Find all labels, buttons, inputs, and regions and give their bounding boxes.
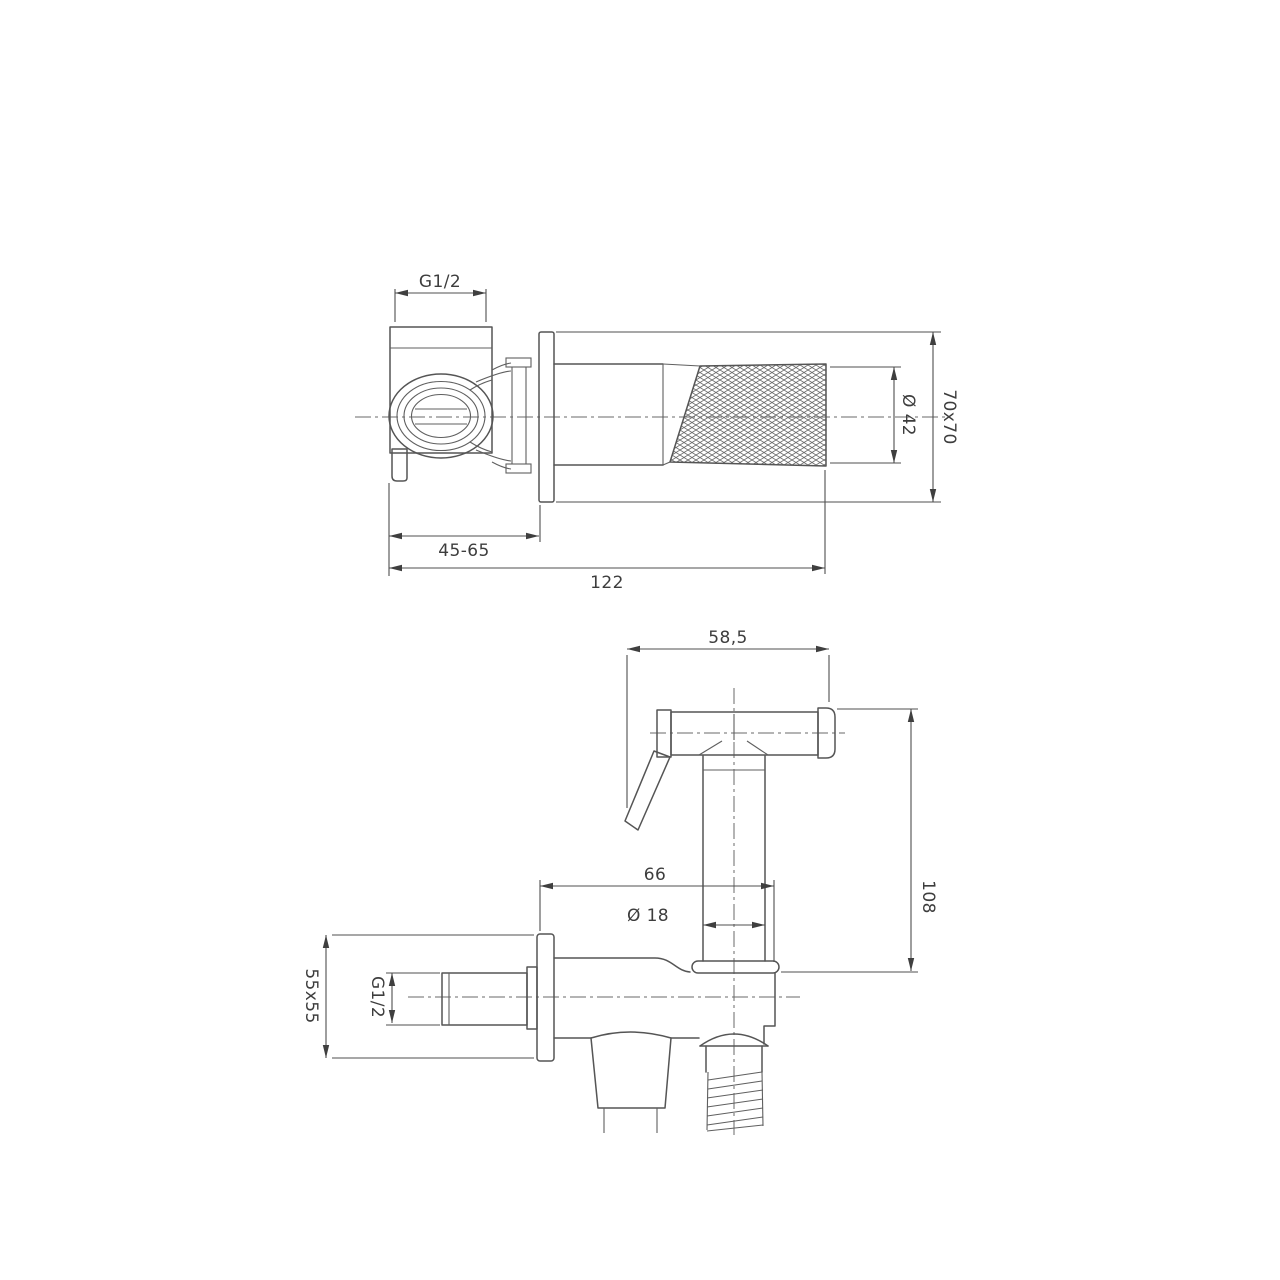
dim-label-handle-diameter: Ø 42 — [898, 394, 918, 436]
tube-collar — [692, 961, 779, 973]
mounting-foot — [392, 449, 407, 481]
dim-outlet-thread: G1/2 — [367, 973, 440, 1025]
dim-label-total-length: 122 — [590, 573, 624, 593]
dim-label-body-offset: 66 — [644, 865, 666, 885]
dim-total-length: 122 — [389, 470, 825, 593]
sprayer-tube — [692, 756, 779, 973]
technical-drawing-svg: G1/2 Ø 42 70x70 45-65 — [0, 0, 1280, 1280]
dim-inlet-thread: G1/2 — [395, 272, 486, 322]
dim-handle-diameter: Ø 42 — [830, 367, 918, 463]
dim-sprayer-height: 108 — [781, 709, 938, 972]
dim-label-plate-size: 55x55 — [301, 968, 321, 1023]
valve-cartridge-rings — [389, 374, 493, 458]
stem-spool — [506, 358, 531, 473]
dim-label-flange-size: 70x70 — [939, 389, 959, 444]
dim-label-depth-range: 45-65 — [438, 541, 489, 561]
dim-label-head-width: 58,5 — [708, 628, 747, 648]
dim-depth-range: 45-65 — [389, 483, 540, 576]
threaded-nipple — [442, 973, 527, 1025]
trigger-lever — [625, 751, 670, 830]
dim-label-outlet-thread: G1/2 — [367, 976, 387, 1018]
dim-tube-diameter: Ø 18 — [627, 906, 765, 928]
valve-body-front — [554, 958, 775, 1044]
drawing-page: G1/2 Ø 42 70x70 45-65 — [0, 0, 1280, 1280]
dim-label-inlet-thread: G1/2 — [419, 272, 461, 292]
knurled-grip — [670, 364, 826, 466]
holder-cup — [591, 1032, 671, 1133]
dim-label-sprayer-height: 108 — [918, 880, 938, 914]
dim-label-tube-diameter: Ø 18 — [627, 906, 669, 926]
bottom-view-drawing: 58,5 108 66 Ø 18 — [301, 628, 938, 1135]
flexible-hose-coil — [707, 1072, 763, 1131]
top-view-drawing: G1/2 Ø 42 70x70 45-65 — [355, 272, 959, 593]
plate-ring — [527, 967, 537, 1029]
